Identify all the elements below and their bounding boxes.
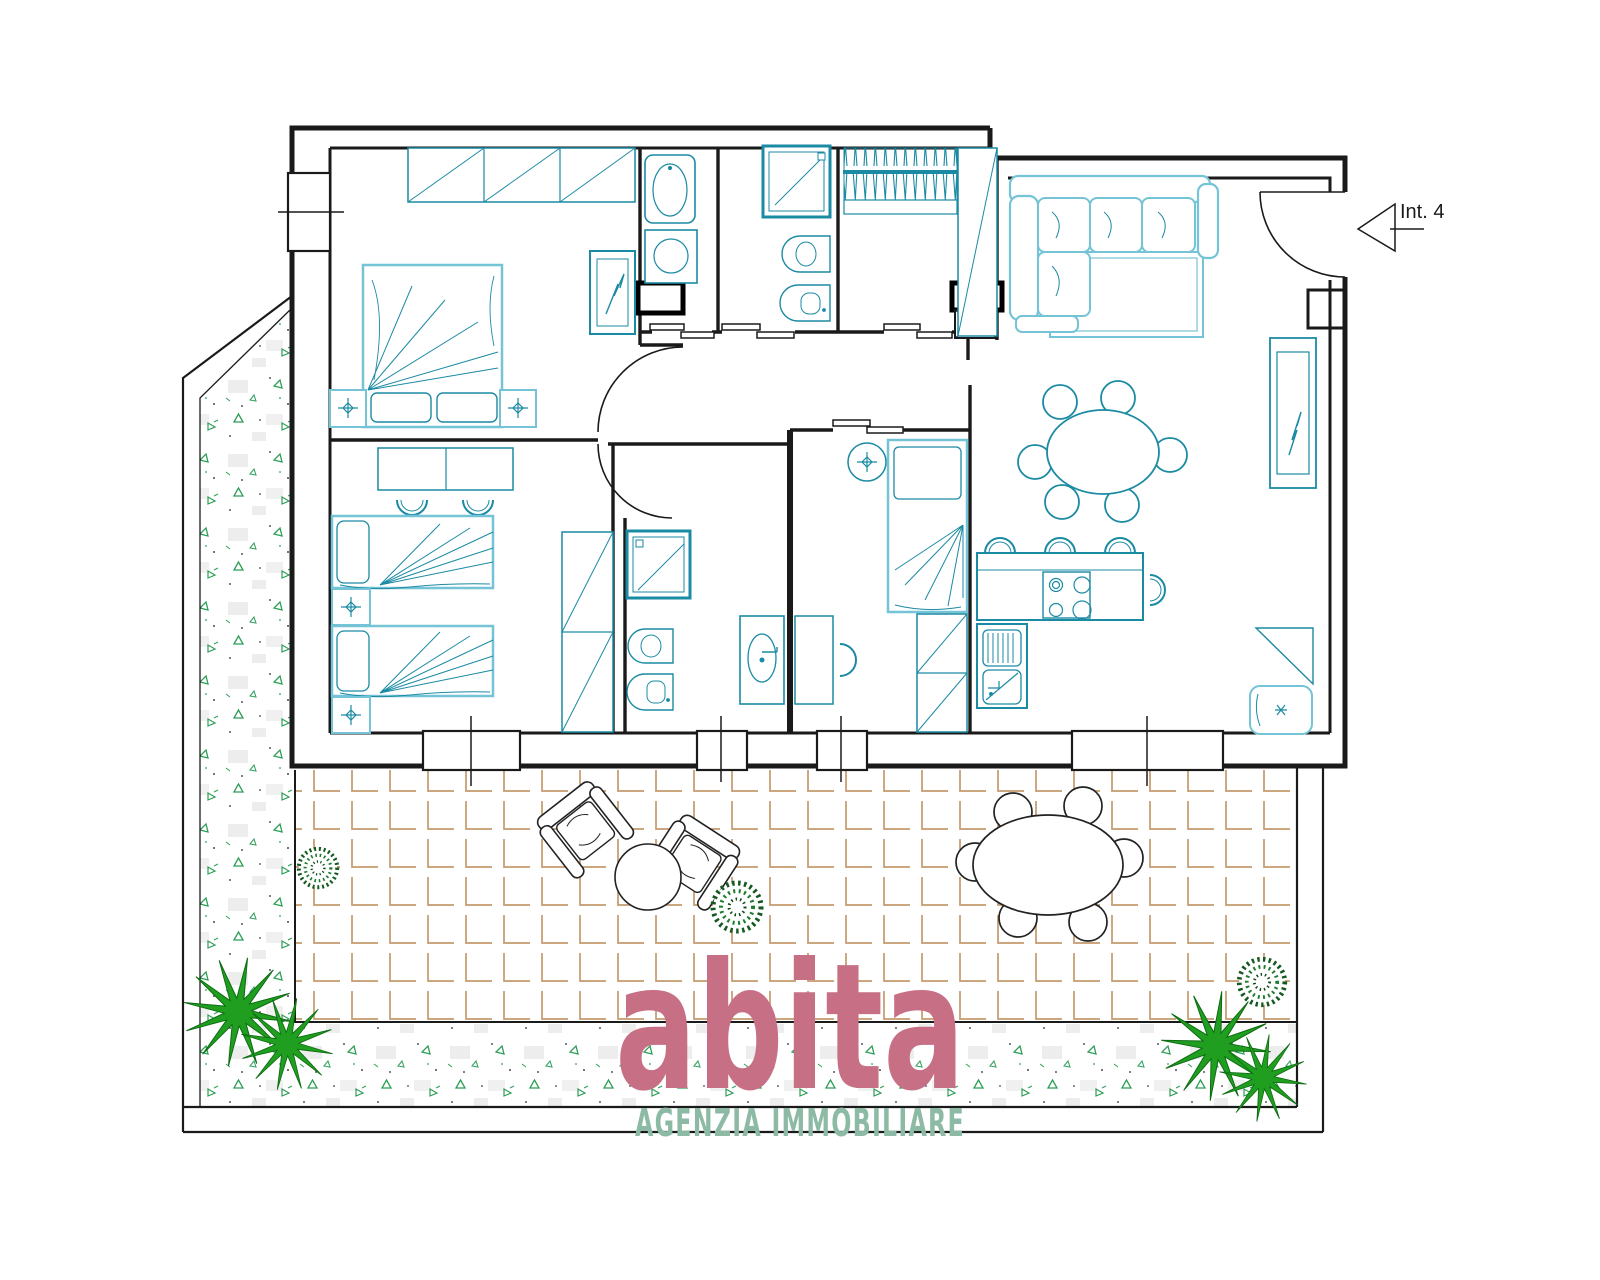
- floorplan-drawing: Int. 4 abita AGENZIA IMMOBILIARE: [0, 0, 1600, 1280]
- dining-table-icon: [1047, 410, 1159, 494]
- agency-logo: abita AGENZIA IMMOBILIARE: [615, 927, 965, 1145]
- bidet-icon: [628, 629, 673, 663]
- wc-icon: [780, 285, 830, 321]
- bidet-icon: [782, 236, 830, 272]
- clothes-rack-icon: [843, 148, 957, 214]
- single-bed-icon: [332, 626, 493, 697]
- single-bed-icon: [888, 440, 967, 612]
- shower-icon: [763, 146, 830, 217]
- floorplan-page: Int. 4 abita AGENZIA IMMOBILIARE: [0, 0, 1600, 1280]
- logo-wordmark: abita: [615, 927, 965, 1130]
- logo-subtitle: AGENZIA IMMOBILIARE: [635, 1101, 965, 1145]
- laundry-room: [645, 155, 697, 283]
- tall-cabinet-icon: [958, 148, 997, 336]
- bush-icon: [1239, 959, 1285, 1005]
- shaft-column-icon: [638, 283, 683, 313]
- tv-cabinet-icon: [1270, 338, 1316, 488]
- coffee-table-icon: [615, 844, 681, 910]
- washbasin-icon: [645, 155, 695, 223]
- wardrobe-icon: [408, 148, 635, 202]
- shower-icon: [627, 531, 690, 598]
- wardrobe-icon: [917, 614, 967, 732]
- window-icon: [817, 731, 867, 770]
- hob-icon: [1043, 572, 1091, 619]
- vanity-sink-icon: [740, 616, 784, 704]
- mirror-icon: [590, 251, 635, 334]
- unit-label: Int. 4: [1400, 201, 1444, 223]
- armchair-icon: [1250, 686, 1312, 734]
- wardrobe-icon: [562, 532, 613, 732]
- single-bed-icon: [332, 516, 493, 589]
- bush-icon: [713, 883, 761, 931]
- entrance-marker: Int. 4: [1358, 201, 1444, 251]
- desk-icon: [795, 616, 833, 704]
- desk-icon: [378, 448, 513, 490]
- double-bed-icon: [363, 265, 502, 427]
- entrance-arrow-icon: [1358, 204, 1395, 251]
- window-icon: [697, 731, 747, 770]
- washing-machine-icon: [645, 230, 697, 283]
- bush-icon: [299, 849, 337, 887]
- kitchen-sink-icon: [977, 624, 1027, 708]
- wc-icon: [627, 674, 673, 710]
